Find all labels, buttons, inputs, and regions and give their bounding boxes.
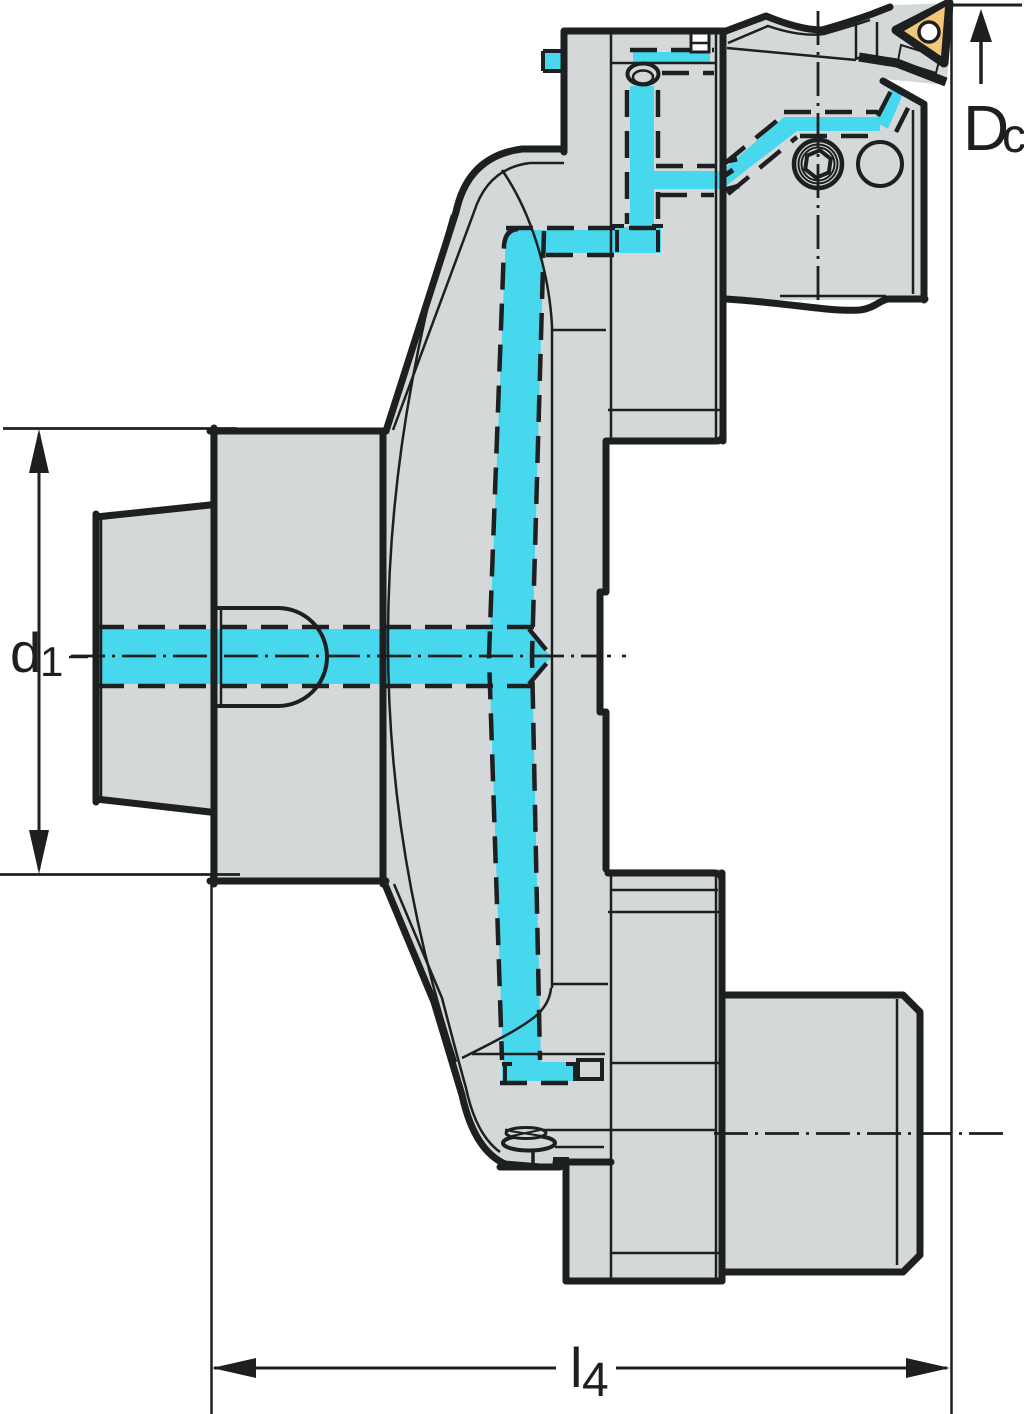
svg-text:l: l bbox=[570, 1336, 582, 1399]
svg-text:4: 4 bbox=[582, 1354, 609, 1407]
svg-text:1: 1 bbox=[40, 638, 63, 685]
svg-text:d: d bbox=[10, 621, 41, 684]
svg-text:c: c bbox=[1002, 110, 1024, 163]
